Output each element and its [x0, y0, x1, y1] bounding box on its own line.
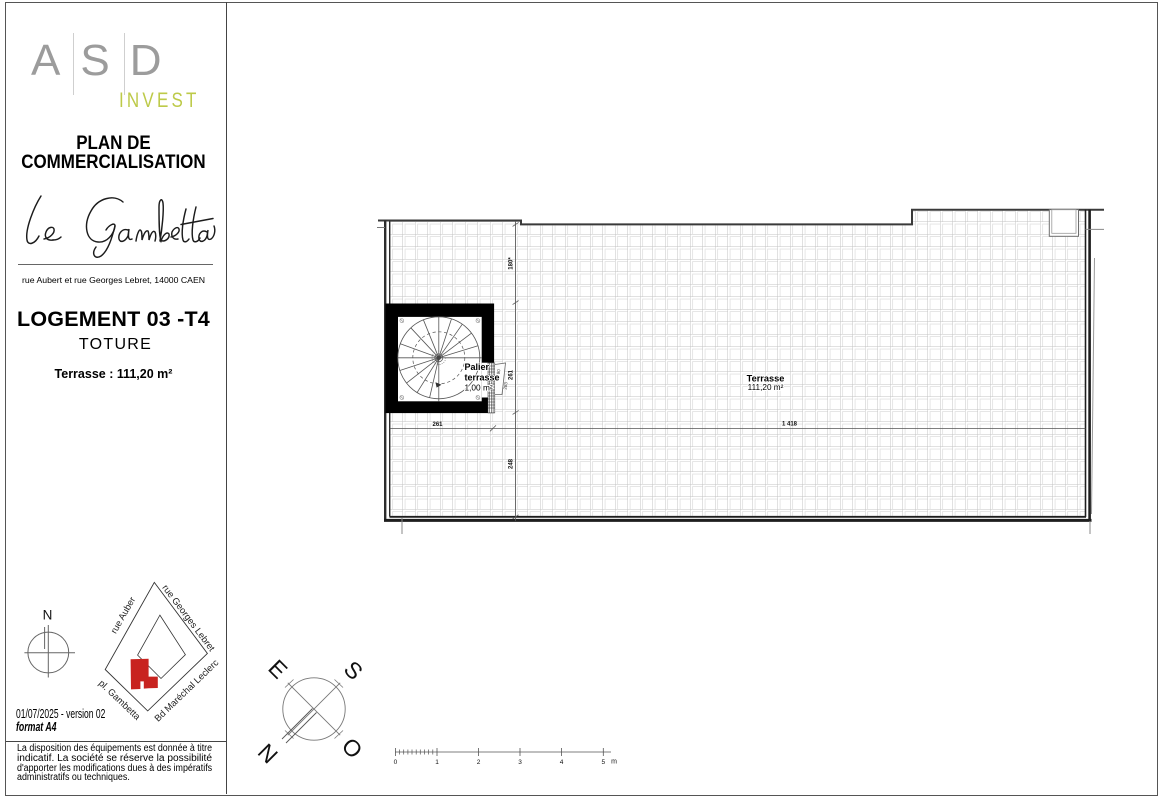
svg-text:m: m — [611, 759, 617, 766]
svg-text:S: S — [339, 656, 368, 685]
svg-text:N: N — [43, 608, 53, 623]
svg-text:2: 2 — [477, 759, 481, 766]
svg-text:E: E — [263, 654, 292, 683]
svg-text:261: 261 — [509, 369, 515, 380]
svg-text:N: N — [253, 738, 283, 768]
svg-text:3: 3 — [518, 759, 522, 766]
svg-text:261: 261 — [432, 422, 443, 428]
svg-text:terrasse: terrasse — [465, 372, 500, 382]
svg-text:5: 5 — [601, 759, 605, 766]
svg-text:Terrasse: Terrasse — [747, 373, 785, 383]
svg-text:rue Georges Lebret: rue Georges Lebret — [160, 583, 217, 654]
svg-text:283: 283 — [503, 381, 509, 390]
svg-text:1,00 m²: 1,00 m² — [465, 382, 493, 392]
svg-text:Palier: Palier — [465, 362, 490, 372]
svg-text:Bd Maréchal Leclerc: Bd Maréchal Leclerc — [153, 657, 221, 723]
svg-text:248: 248 — [509, 458, 515, 469]
svg-text:4: 4 — [560, 759, 564, 766]
svg-text:111,20 m²: 111,20 m² — [748, 383, 784, 392]
svg-text:1 418: 1 418 — [782, 422, 798, 428]
svg-text:0: 0 — [394, 759, 398, 766]
svg-text:1: 1 — [435, 759, 439, 766]
svg-text:rue Auber: rue Auber — [109, 595, 138, 635]
svg-text:O: O — [337, 732, 368, 763]
svg-text:180*: 180* — [509, 257, 515, 270]
